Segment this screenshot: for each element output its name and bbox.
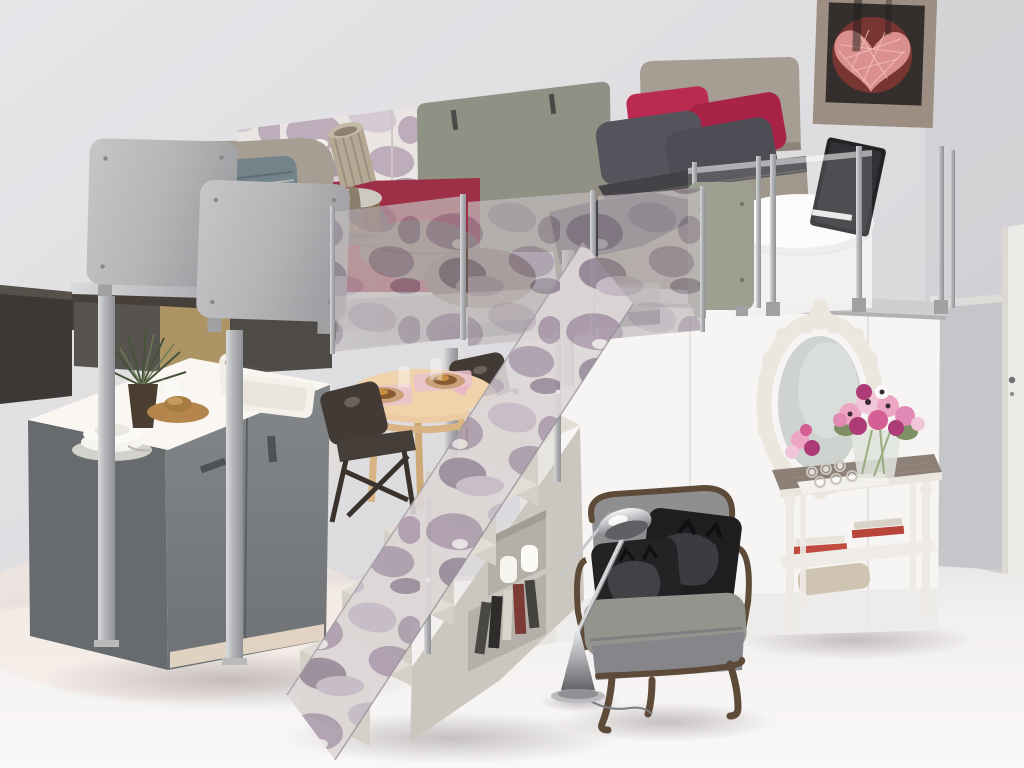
camo-glass-panels [330,186,705,354]
glass-partition [930,294,1004,571]
photo-stage [0,0,1024,768]
door [1002,224,1024,580]
loft-apartment-photo [0,0,1024,768]
door-handle [1009,377,1015,383]
heart-artwork [813,0,938,128]
